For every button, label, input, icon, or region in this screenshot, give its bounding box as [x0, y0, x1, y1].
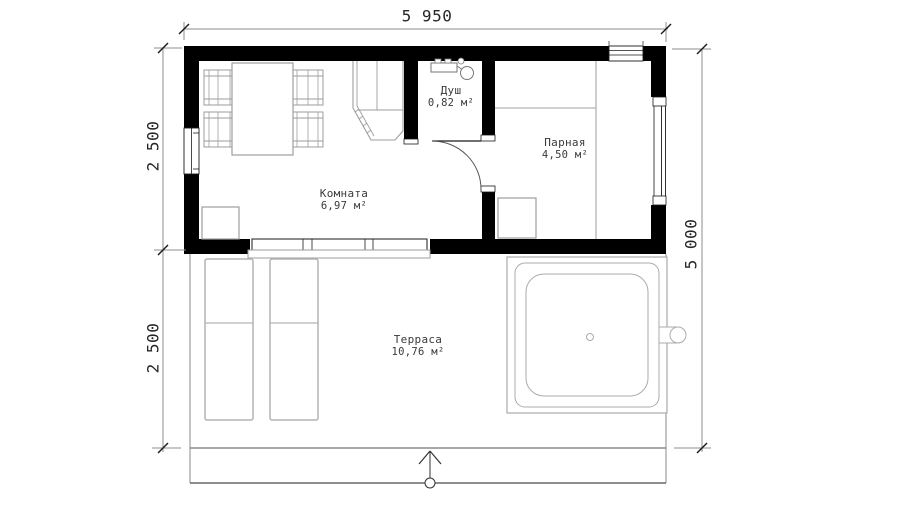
room-name: Душ: [428, 84, 474, 97]
chair: [204, 112, 235, 147]
wall-sauna-left: [482, 192, 495, 239]
wall-cap: [404, 139, 418, 144]
hot-tub: [507, 257, 686, 413]
sauna-stove: [498, 198, 536, 238]
sauna-door: [432, 141, 481, 189]
room-name: Комната: [320, 187, 368, 200]
room-area: 0,82 м²: [428, 97, 474, 110]
dimension-top-label: 5 950: [402, 7, 453, 26]
chair: [292, 112, 323, 147]
floor-plan: 5 950 2 500 2 500 5 000 Душ 0,82 м² Парн…: [0, 0, 900, 527]
window-bottom-sliding: [248, 239, 430, 258]
dimension-right-label: 5 000: [682, 219, 701, 270]
room-area: 4,50 м²: [542, 149, 588, 162]
shower-mixer-icon: [431, 58, 474, 80]
floor-plan-drawing: [0, 0, 900, 527]
sun-lounger: [270, 259, 318, 420]
dimension-left-upper-label: 2 500: [144, 121, 163, 172]
stool: [202, 207, 239, 239]
chair: [204, 70, 235, 105]
sun-lounger: [205, 259, 253, 420]
wall-top: [184, 46, 666, 61]
room-label-room: Комната 6,97 м²: [320, 187, 368, 213]
wall-shower-right: [482, 46, 495, 135]
corner-cabinet: [353, 61, 403, 140]
room-area: 6,97 м²: [320, 200, 368, 213]
chair: [292, 70, 323, 105]
door-swing-arc: [432, 141, 481, 189]
wall-shower-left: [404, 46, 418, 139]
dining-set: [204, 63, 323, 155]
room-name: Парная: [542, 136, 588, 149]
window-sill: [248, 250, 430, 258]
wall-cap: [481, 186, 495, 192]
dimension-left-lower-label: 2 500: [144, 323, 163, 374]
room-label-terrace: Терраса 10,76 м²: [392, 333, 445, 359]
wall-cap: [481, 135, 495, 141]
room-label-shower: Душ 0,82 м²: [428, 84, 474, 110]
dining-table: [232, 63, 293, 155]
room-label-sauna: Парная 4,50 м²: [542, 136, 588, 162]
room-name: Терраса: [392, 333, 445, 346]
window-right: [651, 97, 666, 205]
window-top: [609, 41, 643, 61]
tub-fitting: [670, 327, 686, 343]
window-left: [184, 128, 199, 174]
room-area: 10,76 м²: [392, 346, 445, 359]
